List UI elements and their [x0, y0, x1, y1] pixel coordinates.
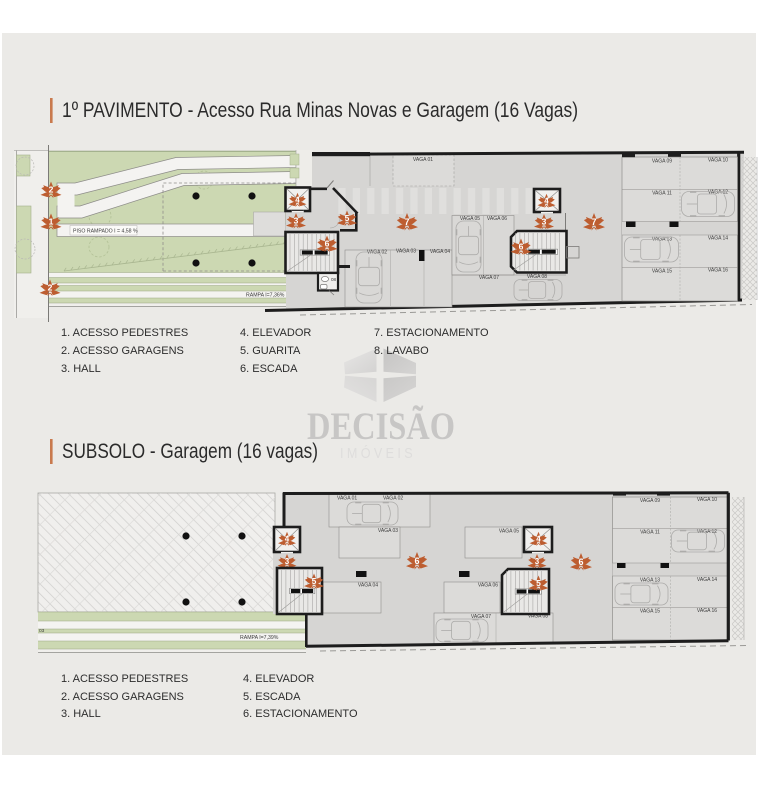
svg-text:RAMPA I=7,39%: RAMPA I=7,39%: [240, 635, 279, 641]
svg-text:2. ACESSO GARAGENS: 2. ACESSO GARAGENS: [61, 691, 184, 703]
svg-text:VAGA 07: VAGA 07: [479, 275, 499, 281]
svg-text:5: 5: [345, 213, 350, 223]
svg-text:VAGA 01: VAGA 01: [337, 496, 357, 502]
svg-text:VAGA 09: VAGA 09: [652, 159, 672, 165]
svg-text:5: 5: [536, 578, 541, 588]
svg-text:6: 6: [519, 242, 524, 252]
svg-text:6. ESCADA: 6. ESCADA: [240, 363, 298, 375]
svg-text:VAGA 03: VAGA 03: [378, 528, 398, 534]
svg-text:3: 3: [285, 557, 290, 566]
svg-text:VAGA 04: VAGA 04: [430, 249, 450, 255]
svg-text:4: 4: [285, 535, 290, 544]
svg-text:VAGA 02: VAGA 02: [383, 496, 403, 502]
svg-text:VAGA 06: VAGA 06: [478, 583, 498, 589]
svg-text:VAGA 11: VAGA 11: [652, 191, 672, 197]
svg-text:5. GUARITA: 5. GUARITA: [240, 345, 301, 357]
svg-text:3. HALL: 3. HALL: [61, 363, 101, 375]
svg-text:VAGA 04: VAGA 04: [358, 583, 378, 589]
svg-text:PISO RAMPADO I = 4,58 %: PISO RAMPADO I = 4,58 %: [73, 229, 138, 235]
svg-text:VAGA 15: VAGA 15: [640, 609, 660, 615]
svg-text:VAGA 10: VAGA 10: [697, 497, 717, 503]
svg-text:VAGA 16: VAGA 16: [708, 268, 728, 274]
svg-text:4. ELEVADOR: 4. ELEVADOR: [240, 327, 311, 339]
svg-text:VAGA 09: VAGA 09: [640, 498, 660, 504]
svg-text:VAGA 11: VAGA 11: [640, 530, 660, 536]
svg-text:7. ESTACIONAMENTO: 7. ESTACIONAMENTO: [374, 327, 489, 339]
svg-text:3: 3: [535, 557, 540, 566]
svg-text:VAGA 06: VAGA 06: [487, 216, 507, 222]
svg-text:VAGA 14: VAGA 14: [708, 236, 728, 242]
svg-text:1º PAVIMENTO - Acesso Rua Mina: 1º PAVIMENTO - Acesso Rua Minas Novas e …: [62, 98, 578, 122]
svg-text:1: 1: [49, 217, 54, 227]
svg-text:SUBSOLO - Garagem (16 vagas): SUBSOLO - Garagem (16 vagas): [62, 439, 318, 463]
svg-text:7: 7: [404, 217, 409, 227]
svg-text:VAGA 15: VAGA 15: [652, 269, 672, 275]
svg-text:3: 3: [294, 216, 299, 226]
svg-text:5. ESCADA: 5. ESCADA: [243, 691, 301, 703]
svg-text:2: 2: [49, 185, 54, 195]
svg-text:3. HALL: 3. HALL: [61, 708, 101, 720]
svg-text:4. ELEVADOR: 4. ELEVADOR: [243, 673, 314, 685]
svg-text:VAGA 14: VAGA 14: [697, 577, 717, 583]
svg-text:VAGA 05: VAGA 05: [499, 529, 519, 535]
svg-text:3: 3: [542, 217, 547, 227]
svg-text:VAGA 10: VAGA 10: [708, 158, 728, 164]
svg-text:7: 7: [591, 217, 596, 227]
svg-text:03: 03: [39, 628, 45, 634]
svg-text:DECISÃO: DECISÃO: [307, 404, 455, 448]
svg-text:8. LAVABO: 8. LAVABO: [374, 345, 429, 357]
svg-text:6: 6: [414, 556, 419, 566]
svg-text:5: 5: [312, 576, 317, 586]
svg-text:VAGA 03: VAGA 03: [396, 249, 416, 255]
svg-text:RAMPA I=7,36%: RAMPA I=7,36%: [246, 293, 285, 299]
svg-text:4: 4: [536, 535, 541, 544]
svg-text:6: 6: [325, 239, 330, 249]
svg-text:VAGA 01: VAGA 01: [413, 157, 433, 163]
svg-text:1. ACESSO PEDESTRES: 1. ACESSO PEDESTRES: [61, 327, 188, 339]
svg-text:08: 08: [331, 277, 337, 282]
svg-text:6. ESTACIONAMENTO: 6. ESTACIONAMENTO: [243, 708, 358, 720]
svg-text:6: 6: [578, 557, 583, 567]
svg-text:VAGA 16: VAGA 16: [697, 608, 717, 614]
svg-text:4: 4: [295, 196, 300, 205]
svg-text:2: 2: [48, 283, 53, 293]
svg-text:IMÓVEIS: IMÓVEIS: [340, 445, 416, 462]
svg-text:2. ACESSO GARAGENS: 2. ACESSO GARAGENS: [61, 345, 184, 357]
svg-text:VAGA 12: VAGA 12: [708, 190, 728, 196]
svg-text:1. ACESSO PEDESTRES: 1. ACESSO PEDESTRES: [61, 673, 188, 685]
svg-text:4: 4: [544, 197, 549, 206]
